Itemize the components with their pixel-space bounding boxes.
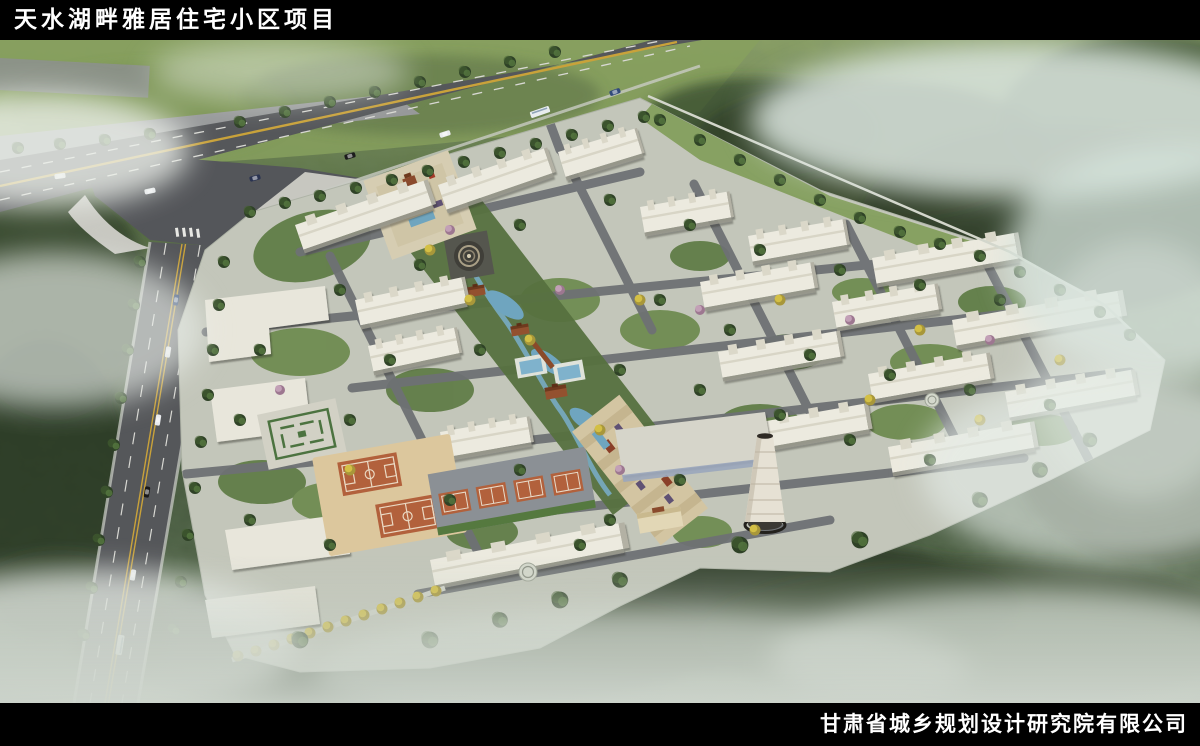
yellow-tree (425, 245, 436, 256)
credit-band: 甘肃省城乡规划设计研究院有限公司 (0, 703, 1200, 746)
design-institute-name: 甘肃省城乡规划设计研究院有限公司 (820, 703, 1188, 745)
blossom-tree (555, 285, 565, 295)
aerial-rendering (0, 40, 1200, 703)
yellow-tree (595, 425, 606, 436)
blossom-tree (615, 465, 625, 475)
project-title: 天水湖畔雅居住宅小区项目 (14, 0, 338, 40)
yellow-tree (865, 395, 876, 406)
blossom-tree (985, 335, 995, 345)
rendering-board: 天水湖畔雅居住宅小区项目 (0, 0, 1200, 746)
title-band: 天水湖畔雅居住宅小区项目 (0, 0, 1200, 40)
yellow-tree (465, 295, 476, 306)
blossom-tree (275, 385, 285, 395)
yellow-tree (915, 325, 926, 336)
blossom-tree (695, 305, 705, 315)
yellow-tree (525, 335, 536, 346)
bottom-mist (0, 555, 1200, 703)
yellow-tree (345, 465, 356, 476)
fog-patch (150, 40, 410, 104)
yellow-tree (750, 525, 761, 536)
blossom-tree (845, 315, 855, 325)
yellow-tree (635, 295, 646, 306)
blossom-tree (445, 225, 455, 235)
yellow-tree (775, 295, 786, 306)
